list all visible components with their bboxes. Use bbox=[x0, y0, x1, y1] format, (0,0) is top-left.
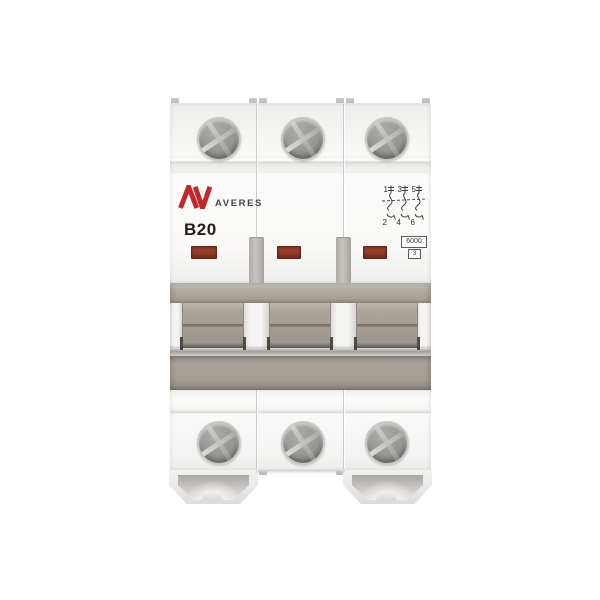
svg-text:2: 2 bbox=[383, 218, 388, 227]
handle-shadow bbox=[170, 346, 431, 356]
product-photo: AVERES B20 bbox=[0, 0, 600, 600]
breaking-capacity-box: 6000 bbox=[401, 236, 427, 248]
wiring-diagram: 1 3 5 2 4 6 bbox=[379, 183, 429, 229]
svg-text:6: 6 bbox=[411, 218, 416, 227]
handle-groove bbox=[270, 324, 330, 327]
mounting-foot bbox=[169, 470, 258, 504]
pole-separator bbox=[343, 390, 344, 469]
handle-groove bbox=[183, 324, 243, 327]
pole-separator bbox=[256, 390, 257, 469]
svg-text:5: 5 bbox=[412, 185, 417, 194]
rating-label: B20 bbox=[184, 220, 217, 240]
separator-post bbox=[336, 237, 351, 284]
handle-gap bbox=[329, 303, 356, 348]
toggle-handle bbox=[182, 303, 244, 348]
toggle-handle-row bbox=[170, 303, 431, 348]
terminal-screw-icon bbox=[197, 117, 241, 161]
brand-name: AVERES bbox=[215, 198, 263, 209]
svg-text:1: 1 bbox=[384, 185, 389, 194]
toggle-handle bbox=[356, 303, 418, 348]
separator-post bbox=[249, 237, 264, 284]
handle-groove bbox=[357, 324, 417, 327]
toggle-crossbar-bottom bbox=[170, 356, 431, 390]
mounting-foot bbox=[343, 470, 432, 504]
indicator-window bbox=[191, 246, 217, 259]
lower-band bbox=[170, 390, 431, 413]
svg-text:3: 3 bbox=[398, 185, 403, 194]
terminal-screw-icon bbox=[281, 117, 325, 161]
terminal-screw-icon bbox=[365, 421, 409, 465]
toggle-crossbar-top bbox=[170, 283, 431, 303]
toggle-handle bbox=[269, 303, 331, 348]
terminal-screw-icon bbox=[281, 421, 325, 465]
terminal-screw-icon bbox=[365, 117, 409, 161]
handle-gap bbox=[242, 303, 269, 348]
circuit-breaker-3pole: AVERES B20 bbox=[170, 98, 431, 508]
indicator-window bbox=[363, 246, 387, 259]
energy-class-box: 3 bbox=[408, 249, 421, 259]
terminal-screw-icon bbox=[197, 421, 241, 465]
indicator-window bbox=[277, 246, 301, 259]
middle-pole-shadow bbox=[256, 470, 345, 474]
svg-text:4: 4 bbox=[397, 218, 402, 227]
brand-logo-av-icon bbox=[178, 185, 214, 209]
